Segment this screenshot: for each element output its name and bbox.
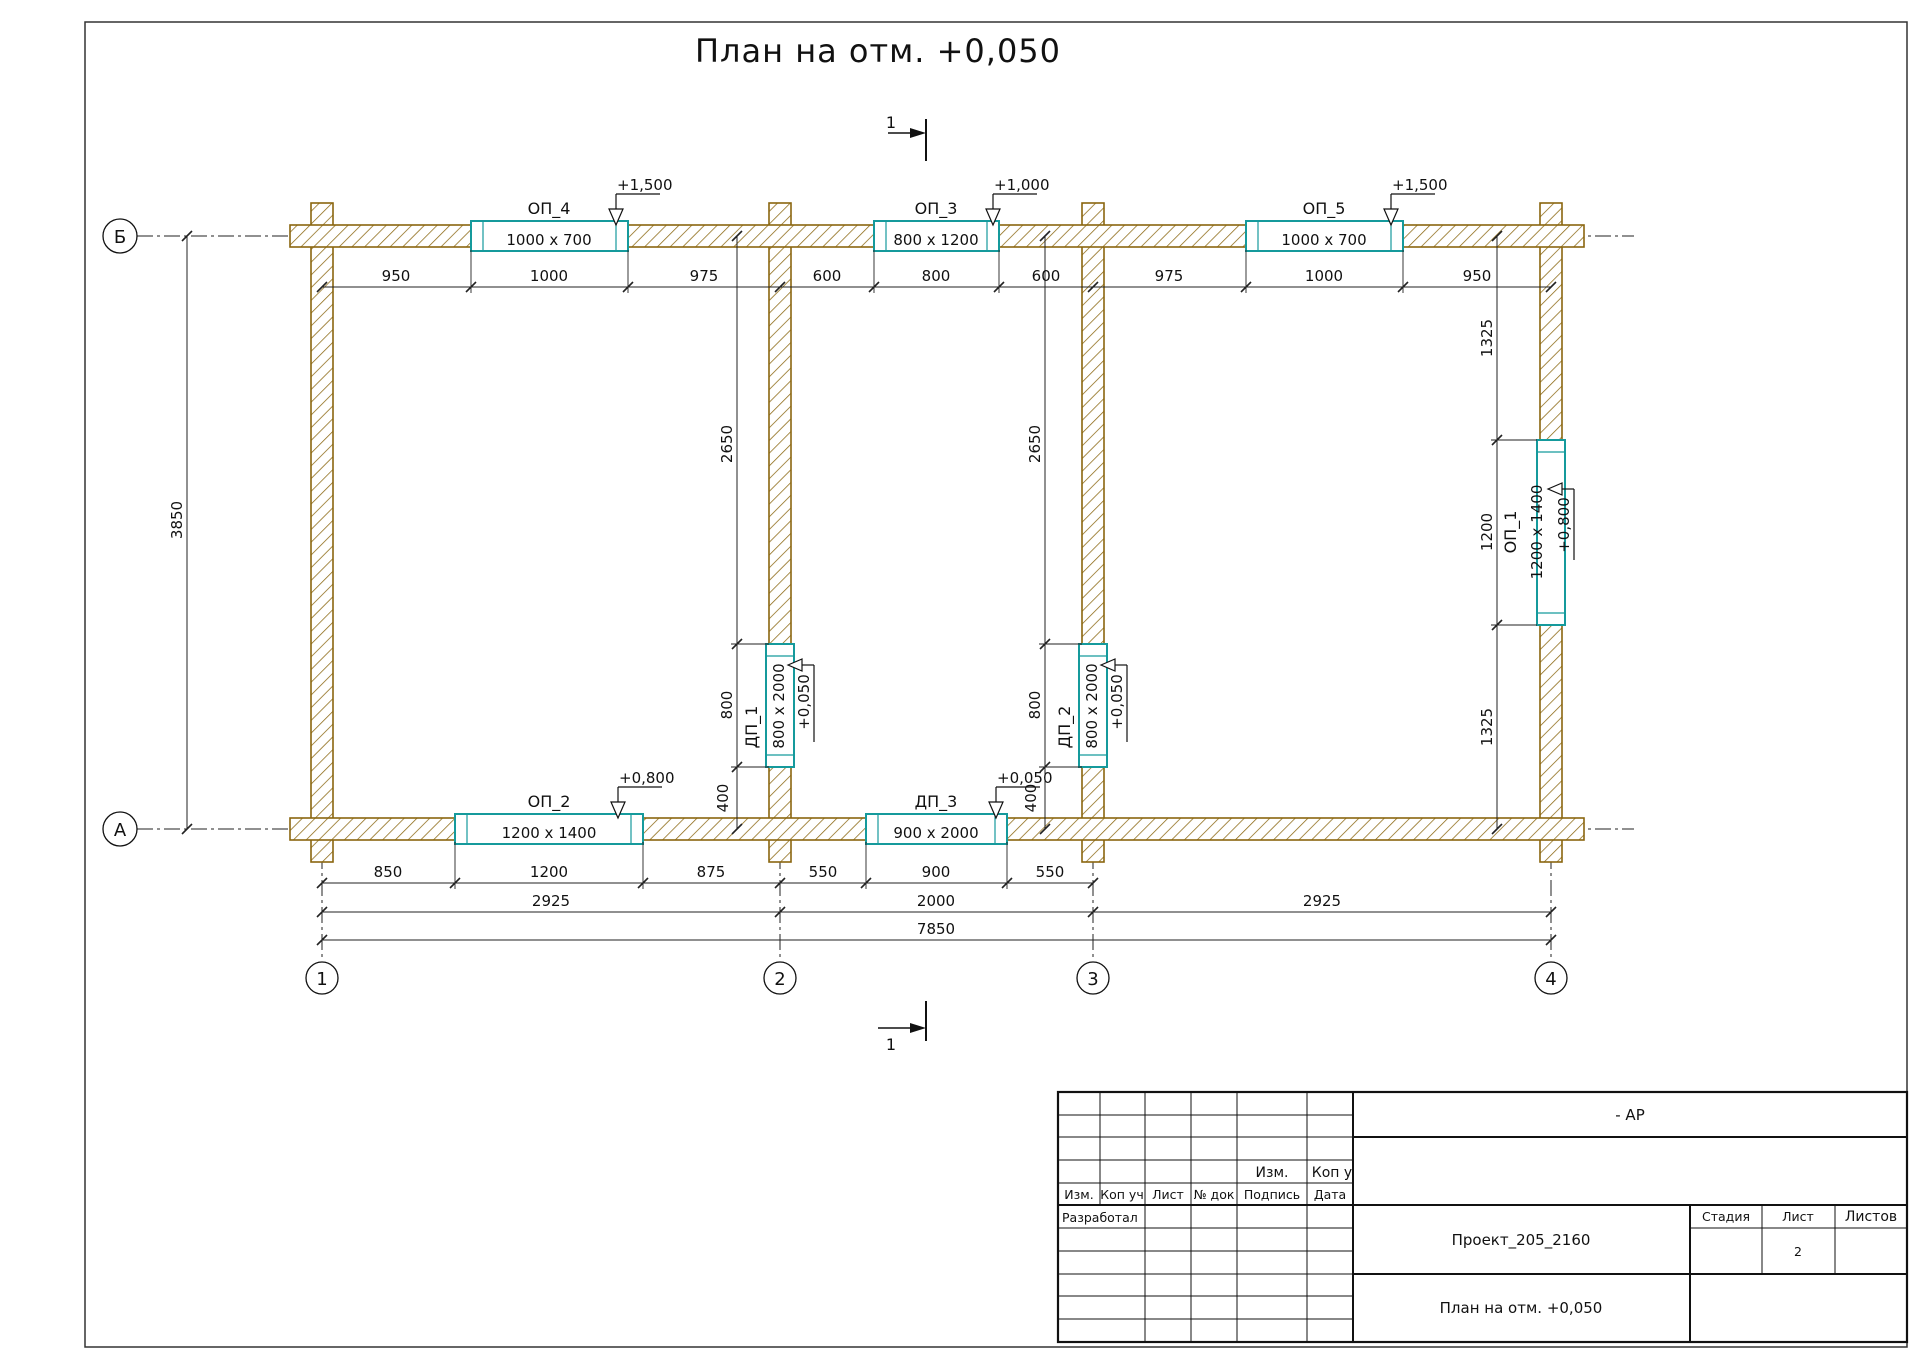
dim-top-4: 800 <box>922 267 951 285</box>
dp2-size: 800 x 2000 <box>1083 663 1101 748</box>
dim-right-1: 1200 <box>1478 513 1496 551</box>
dp3-size: 900 x 2000 <box>893 824 978 842</box>
dim-top-6: 975 <box>1155 267 1184 285</box>
elev-op3: +1,000 <box>986 176 1050 225</box>
titleblock-rev-izm: Изм. <box>1256 1165 1289 1181</box>
dim-b1-0: 850 <box>374 863 403 881</box>
dp3-label: ДП_3 <box>915 792 958 812</box>
dp1-label: ДП_1 <box>742 706 762 749</box>
section-marker-top: 1 <box>886 113 926 161</box>
titleblock-stage-label: Стадия <box>1702 1209 1750 1224</box>
centerlines <box>137 205 1634 961</box>
axis-row-b: Б <box>114 227 126 248</box>
floor-plan-svg: План на отм. +0,050 <box>0 0 1920 1358</box>
titleblock-project: Проект_205_2160 <box>1452 1231 1591 1250</box>
op4-label: ОП_4 <box>528 199 571 219</box>
dim-b2-1: 2000 <box>917 892 955 910</box>
op1-size: 1200 x 1400 <box>1528 485 1546 580</box>
dim-top-5: 600 <box>1032 267 1061 285</box>
walls <box>290 203 1584 862</box>
elev-op4-value: +1,500 <box>617 176 673 194</box>
dim-top-2: 975 <box>690 267 719 285</box>
dim-top-3: 600 <box>813 267 842 285</box>
elev-op5-value: +1,500 <box>1392 176 1448 194</box>
dim-b1-5: 550 <box>1036 863 1065 881</box>
opening-labels: ОП_4 1000 x 700 ОП_3 800 x 1200 ОП_5 100… <box>502 199 1546 842</box>
dim-left: 3850 <box>168 501 186 539</box>
titleblock-rev-kop: Коп у <box>1312 1165 1352 1181</box>
op5-label: ОП_5 <box>1303 199 1346 219</box>
titleblock-developed: Разработал <box>1062 1210 1138 1225</box>
dp2-label: ДП_2 <box>1055 706 1075 749</box>
dp1-size: 800 x 2000 <box>770 663 788 748</box>
section-marker-bottom: 1 <box>878 1001 926 1054</box>
elev-op2-value: +0,800 <box>619 769 675 787</box>
dim-top-1: 1000 <box>530 267 568 285</box>
dim-top-7: 1000 <box>1305 267 1343 285</box>
titleblock-h-kopuch: Коп уч <box>1100 1187 1143 1202</box>
dim-total: 7850 <box>917 920 955 938</box>
dim-top-0: 950 <box>382 267 411 285</box>
dim-b1-2: 875 <box>697 863 726 881</box>
dim-b2-0: 2925 <box>532 892 570 910</box>
axis-col-2: 2 <box>774 969 785 990</box>
elev-dp3: +0,050 <box>989 769 1053 818</box>
op3-label: ОП_3 <box>915 199 958 219</box>
dim-b2-2: 2925 <box>1303 892 1341 910</box>
dim-w2-0: 2650 <box>718 425 736 463</box>
titleblock-sheets-label: Листов <box>1845 1209 1897 1225</box>
titleblock-sheet-label: Лист <box>1782 1209 1814 1224</box>
dim-b1-1: 1200 <box>530 863 568 881</box>
dim-w3-2: 400 <box>1022 784 1040 813</box>
section-label-top: 1 <box>886 113 896 132</box>
elev-op4: +1,500 <box>609 176 673 225</box>
dim-w3-1: 800 <box>1026 691 1044 720</box>
axis-col-1: 1 <box>316 969 327 990</box>
axis-col-4: 4 <box>1545 969 1556 990</box>
elev-dp2-value: +0,050 <box>1108 674 1126 730</box>
titleblock-h-izm: Изм. <box>1064 1187 1093 1202</box>
dim-w2-2: 400 <box>714 784 732 813</box>
title-block: - АР Изм. Коп у Изм. Коп уч Лист № док П… <box>1058 1092 1907 1342</box>
openings <box>455 221 1565 844</box>
op5-size: 1000 x 700 <box>1281 231 1366 249</box>
section-label-bottom: 1 <box>886 1035 896 1054</box>
op2-size: 1200 x 1400 <box>502 824 597 842</box>
op3-size: 800 x 1200 <box>893 231 978 249</box>
page-title: План на отм. +0,050 <box>695 32 1061 70</box>
elev-op1-value: +0,800 <box>1555 497 1573 553</box>
elev-op3-value: +1,000 <box>994 176 1050 194</box>
op4-size: 1000 x 700 <box>506 231 591 249</box>
op1-label: ОП_1 <box>1501 511 1521 554</box>
dim-b1-4: 900 <box>922 863 951 881</box>
elev-op2: +0,800 <box>611 769 675 818</box>
titleblock-h-list: Лист <box>1152 1187 1184 1202</box>
dim-right-0: 1325 <box>1478 319 1496 357</box>
dim-right-2: 1325 <box>1478 708 1496 746</box>
titleblock-doc-title: План на отм. +0,050 <box>1440 1299 1603 1317</box>
titleblock-code: - АР <box>1615 1106 1645 1124</box>
dim-w2-1: 800 <box>718 691 736 720</box>
titleblock-sheet-number: 2 <box>1794 1244 1802 1259</box>
axis-col-3: 3 <box>1087 969 1098 990</box>
axis-row-a: А <box>114 820 127 841</box>
titleblock-h-podpis: Подпись <box>1244 1187 1300 1202</box>
elev-dp1-value: +0,050 <box>795 674 813 730</box>
op2-label: ОП_2 <box>528 792 571 812</box>
section-markers: 1 1 <box>878 113 926 1054</box>
elev-op5: +1,500 <box>1384 176 1448 225</box>
dim-w3-0: 2650 <box>1026 425 1044 463</box>
dim-top-8: 950 <box>1463 267 1492 285</box>
dim-b1-3: 550 <box>809 863 838 881</box>
titleblock-h-data: Дата <box>1314 1187 1346 1202</box>
titleblock-h-ndok: № док <box>1194 1187 1235 1202</box>
wall-axis-1 <box>311 203 333 862</box>
drawing-sheet: План на отм. +0,050 <box>0 0 1920 1358</box>
